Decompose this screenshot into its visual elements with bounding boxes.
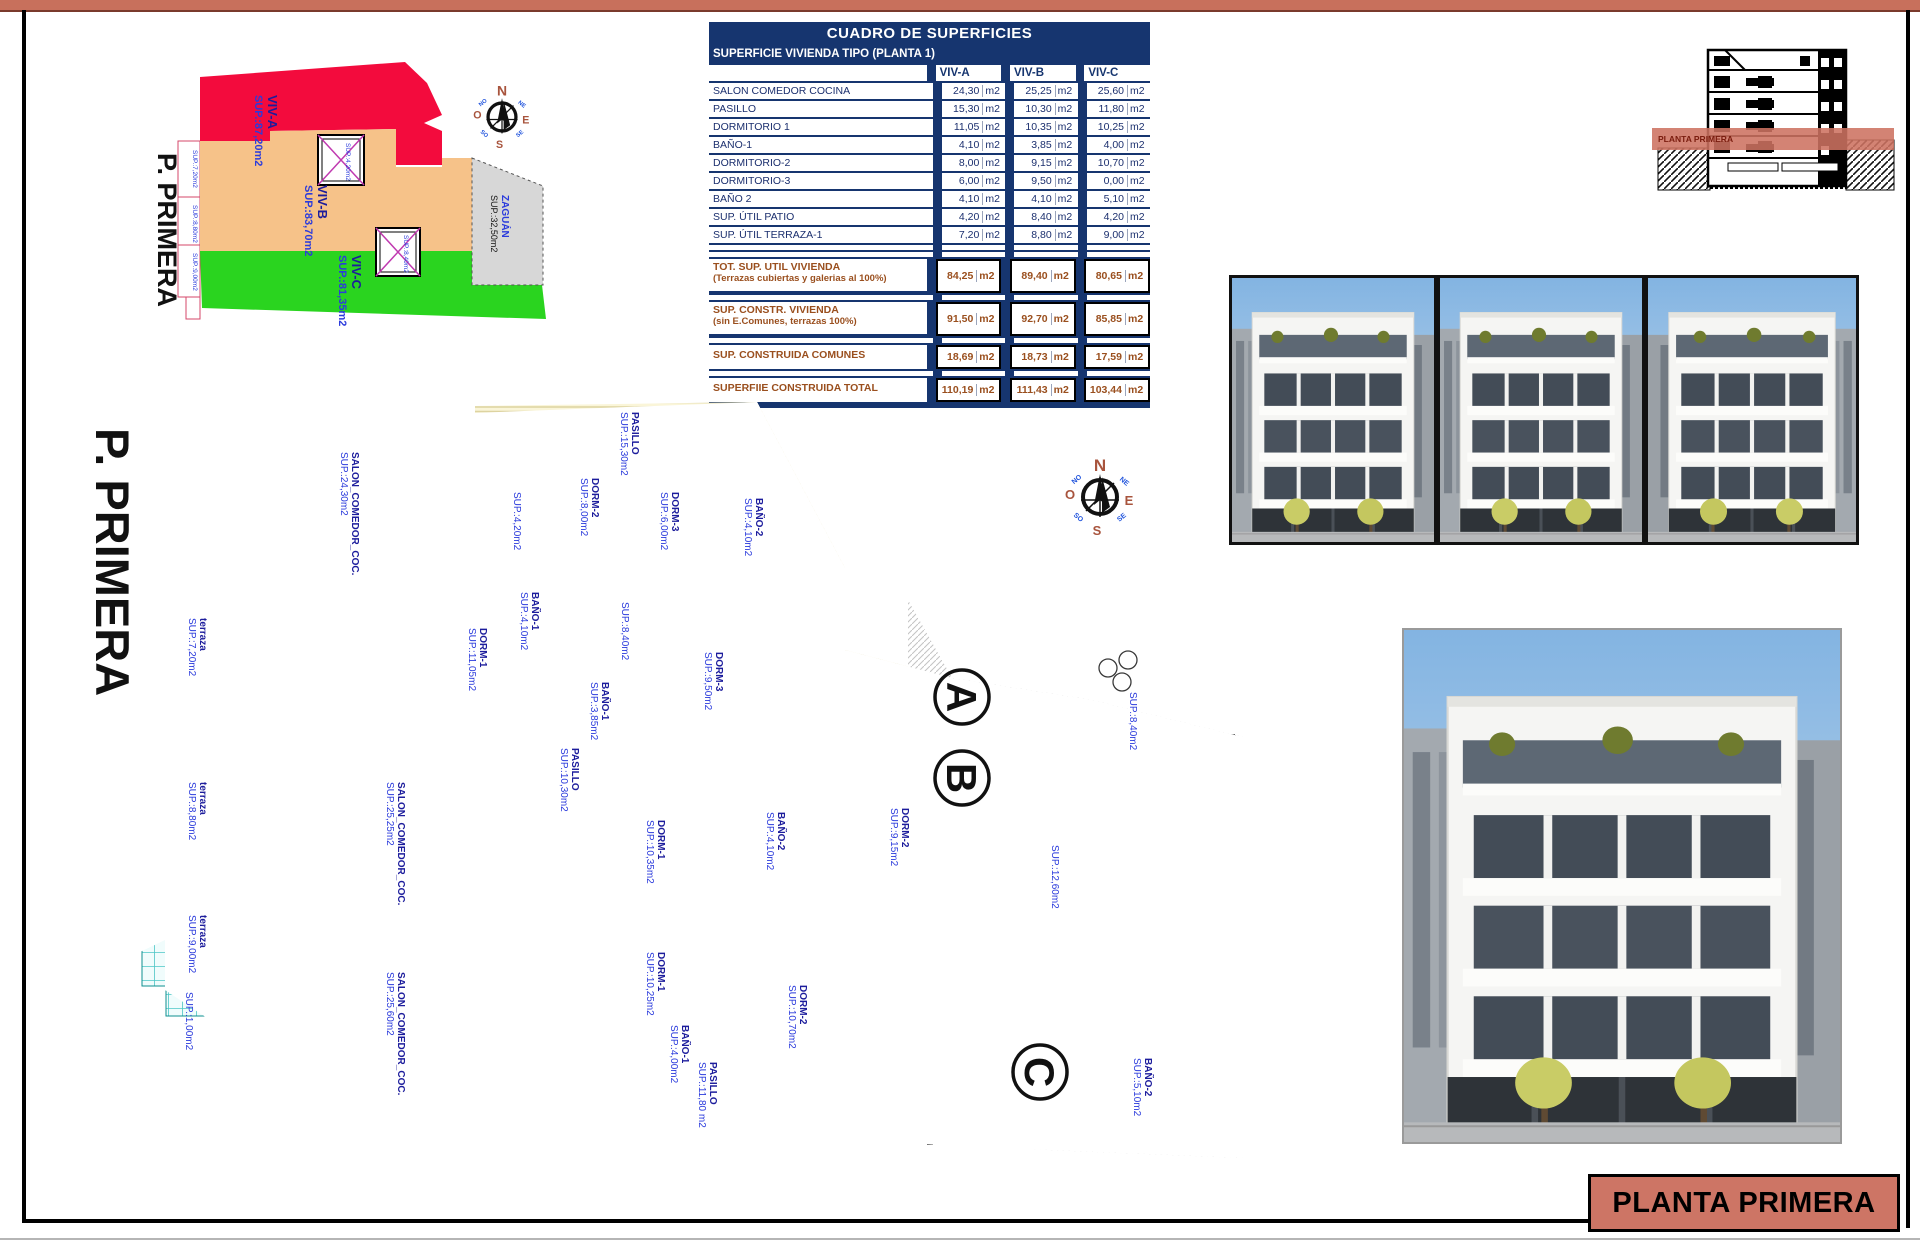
table-subtitle: SUPERFICIE VIVIENDA TIPO (PLANTA 1): [709, 46, 1150, 63]
table-value-cell: 4,00m2: [1087, 137, 1150, 153]
table-value-cell: 9,00m2: [1087, 227, 1150, 243]
room-label: SUP.:8,40m2: [1127, 692, 1138, 751]
table-value-cell: 15,30m2: [942, 101, 1005, 117]
plan-sheet: { "page": {"title_block": "PLANTA PRIMER…: [0, 0, 1920, 1244]
table-spacer: [1014, 371, 1077, 376]
table-value-cell: 4,10m2: [1014, 191, 1077, 207]
sheet-title: PLANTA PRIMERA: [1612, 1187, 1875, 1220]
table-spacer: [1087, 295, 1150, 300]
table-value-cell: 11,80m2: [1087, 101, 1150, 117]
zone-key-diagram: P. PRIMERA VIV-A SUP.:87,20m2 VIV-B SUP.…: [90, 55, 590, 347]
table-value-cell: 11,05m2: [942, 119, 1005, 135]
table-value-cell: 8,40m2: [1014, 209, 1077, 225]
table-spacer: [1014, 245, 1077, 250]
table-spacer: [1014, 338, 1077, 343]
table-total-label: SUP. CONSTR. VIVIENDA(sin E.Comunes, ter…: [709, 302, 927, 334]
table-total-label: TOT. SUP. UTIL VIVIENDA(Terrazas cubiert…: [709, 259, 927, 291]
table-column-header: VIV-B: [1010, 65, 1076, 81]
table-value-cell: 10,35m2: [1014, 119, 1077, 135]
table-column-header: VIV-C: [1084, 65, 1150, 81]
table-value-cell: 5,10m2: [1087, 191, 1150, 207]
table-value-cell: 91,50m2: [936, 302, 1002, 336]
unit-marker-letter: B: [938, 763, 985, 793]
table-value-cell: 10,30m2: [1014, 101, 1077, 117]
table-row-label: DORMITORIO-3: [709, 173, 933, 189]
table-value-cell: 9,50m2: [1014, 173, 1077, 189]
table-value-cell: 85,85m2: [1084, 302, 1150, 336]
zone-patio-label: SUP.:4,20m2: [344, 143, 351, 181]
table-spacer: [1087, 245, 1150, 250]
table-row-label: BAÑO 2: [709, 191, 933, 207]
table-spacer: [1014, 252, 1077, 257]
sheet-border-right: [1906, 10, 1910, 1228]
room-label: SUP.:4,20m2: [511, 492, 522, 551]
unit-marker-letter: A: [938, 682, 985, 712]
floor-plan: ABC SALON_COMEDOR_COC.SUP.:24,30m2PASILL…: [85, 398, 1255, 1178]
table-value-cell: 80,65m2: [1084, 259, 1150, 293]
table-row-label: BAÑO-1: [709, 137, 933, 153]
table-row-label: SUP. ÚTIL PATIO: [709, 209, 933, 225]
sheet-title-block: PLANTA PRIMERA: [1588, 1174, 1900, 1232]
table-spacer: [942, 252, 1005, 257]
zone-strip-label: SUP.:7,20m2: [191, 150, 198, 188]
room-label: SUP.:1,00m2: [183, 992, 194, 1051]
section-drawing: PLANTA PRIMERA: [1650, 28, 1900, 196]
table-value-cell: 4,20m2: [942, 209, 1005, 225]
table-value-cell: 18,69m2: [936, 345, 1002, 369]
building-render-1: [1229, 275, 1437, 545]
table-row-label: SUP. ÚTIL TERRAZA-1: [709, 227, 933, 243]
table-value-cell: 9,15m2: [1014, 155, 1077, 171]
table-value-cell: 10,25m2: [1087, 119, 1150, 135]
building-render-3: [1645, 275, 1859, 545]
table-spacer: [709, 338, 933, 343]
top-accent-bar: [0, 0, 1920, 12]
building-render-2: [1437, 275, 1645, 545]
table-value-cell: 0,00m2: [1087, 173, 1150, 189]
table-value-cell: 4,10m2: [942, 191, 1005, 207]
table-spacer: [709, 245, 933, 250]
table-value-cell: 6,00m2: [942, 173, 1005, 189]
table-total-label: SUP. CONSTRUIDA COMUNES: [709, 345, 927, 369]
plan-floor-label: P. PRIMERA: [86, 428, 139, 696]
sheet-border-left: [22, 10, 26, 1222]
room-label: SUP.:12,60m2: [1049, 845, 1060, 909]
table-value-cell: 24,30m2: [942, 83, 1005, 99]
table-corner-cell: [709, 65, 927, 81]
zone-patio-label: SUP.:8,40m2: [402, 235, 409, 273]
table-column-header: VIV-A: [936, 65, 1002, 81]
page-edge-line: [0, 1238, 1920, 1240]
table-value-cell: 92,70m2: [1010, 302, 1076, 336]
room-label: SUP.:8,40m2: [619, 602, 630, 661]
table-spacer: [942, 295, 1005, 300]
table-value-cell: 4,20m2: [1087, 209, 1150, 225]
table-spacer: [1087, 338, 1150, 343]
zone-strip-label: SUP.:9,00m2: [191, 253, 198, 291]
table-row-label: DORMITORIO 1: [709, 119, 933, 135]
table-value-cell: 89,40m2: [1010, 259, 1076, 293]
table-value-cell: 25,25m2: [1014, 83, 1077, 99]
zone-strip-label: SUP.:8,80m2: [191, 205, 198, 243]
table-value-cell: 84,25m2: [936, 259, 1002, 293]
table-value-cell: 25,60m2: [1087, 83, 1150, 99]
zone-label-viv-c: VIV-C SUP.:81,35m2: [336, 255, 365, 326]
table-title: CUADRO DE SUPERFICIES: [709, 22, 1150, 46]
table-value-cell: 8,80m2: [1014, 227, 1077, 243]
building-render-large: [1402, 628, 1842, 1144]
table-value-cell: 7,20m2: [942, 227, 1005, 243]
table-value-cell: 17,59m2: [1084, 345, 1150, 369]
table-spacer: [1014, 295, 1077, 300]
table-spacer: [709, 295, 933, 300]
table-value-cell: 18,73m2: [1010, 345, 1076, 369]
table-spacer: [942, 338, 1005, 343]
table-spacer: [709, 252, 933, 257]
table-spacer: [942, 371, 1005, 376]
table-spacer: [1087, 252, 1150, 257]
table-row-label: PASILLO: [709, 101, 933, 117]
section-band-label: PLANTA PRIMERA: [1658, 134, 1733, 144]
table-value-cell: 8,00m2: [942, 155, 1005, 171]
table-value-cell: 3,85m2: [1014, 137, 1077, 153]
table-row-label: SALON COMEDOR COCINA: [709, 83, 933, 99]
table-spacer: [942, 245, 1005, 250]
table-row-label: DORMITORIO-2: [709, 155, 933, 171]
table-value-cell: 10,70m2: [1087, 155, 1150, 171]
sheet-border-bottom: [22, 1219, 1592, 1223]
unit-marker-letter: C: [1016, 1057, 1063, 1087]
table-spacer: [709, 371, 933, 376]
surfaces-table: CUADRO DE SUPERFICIES SUPERFICIE VIVIEND…: [709, 22, 1150, 408]
table-spacer: [1087, 371, 1150, 376]
table-value-cell: 4,10m2: [942, 137, 1005, 153]
